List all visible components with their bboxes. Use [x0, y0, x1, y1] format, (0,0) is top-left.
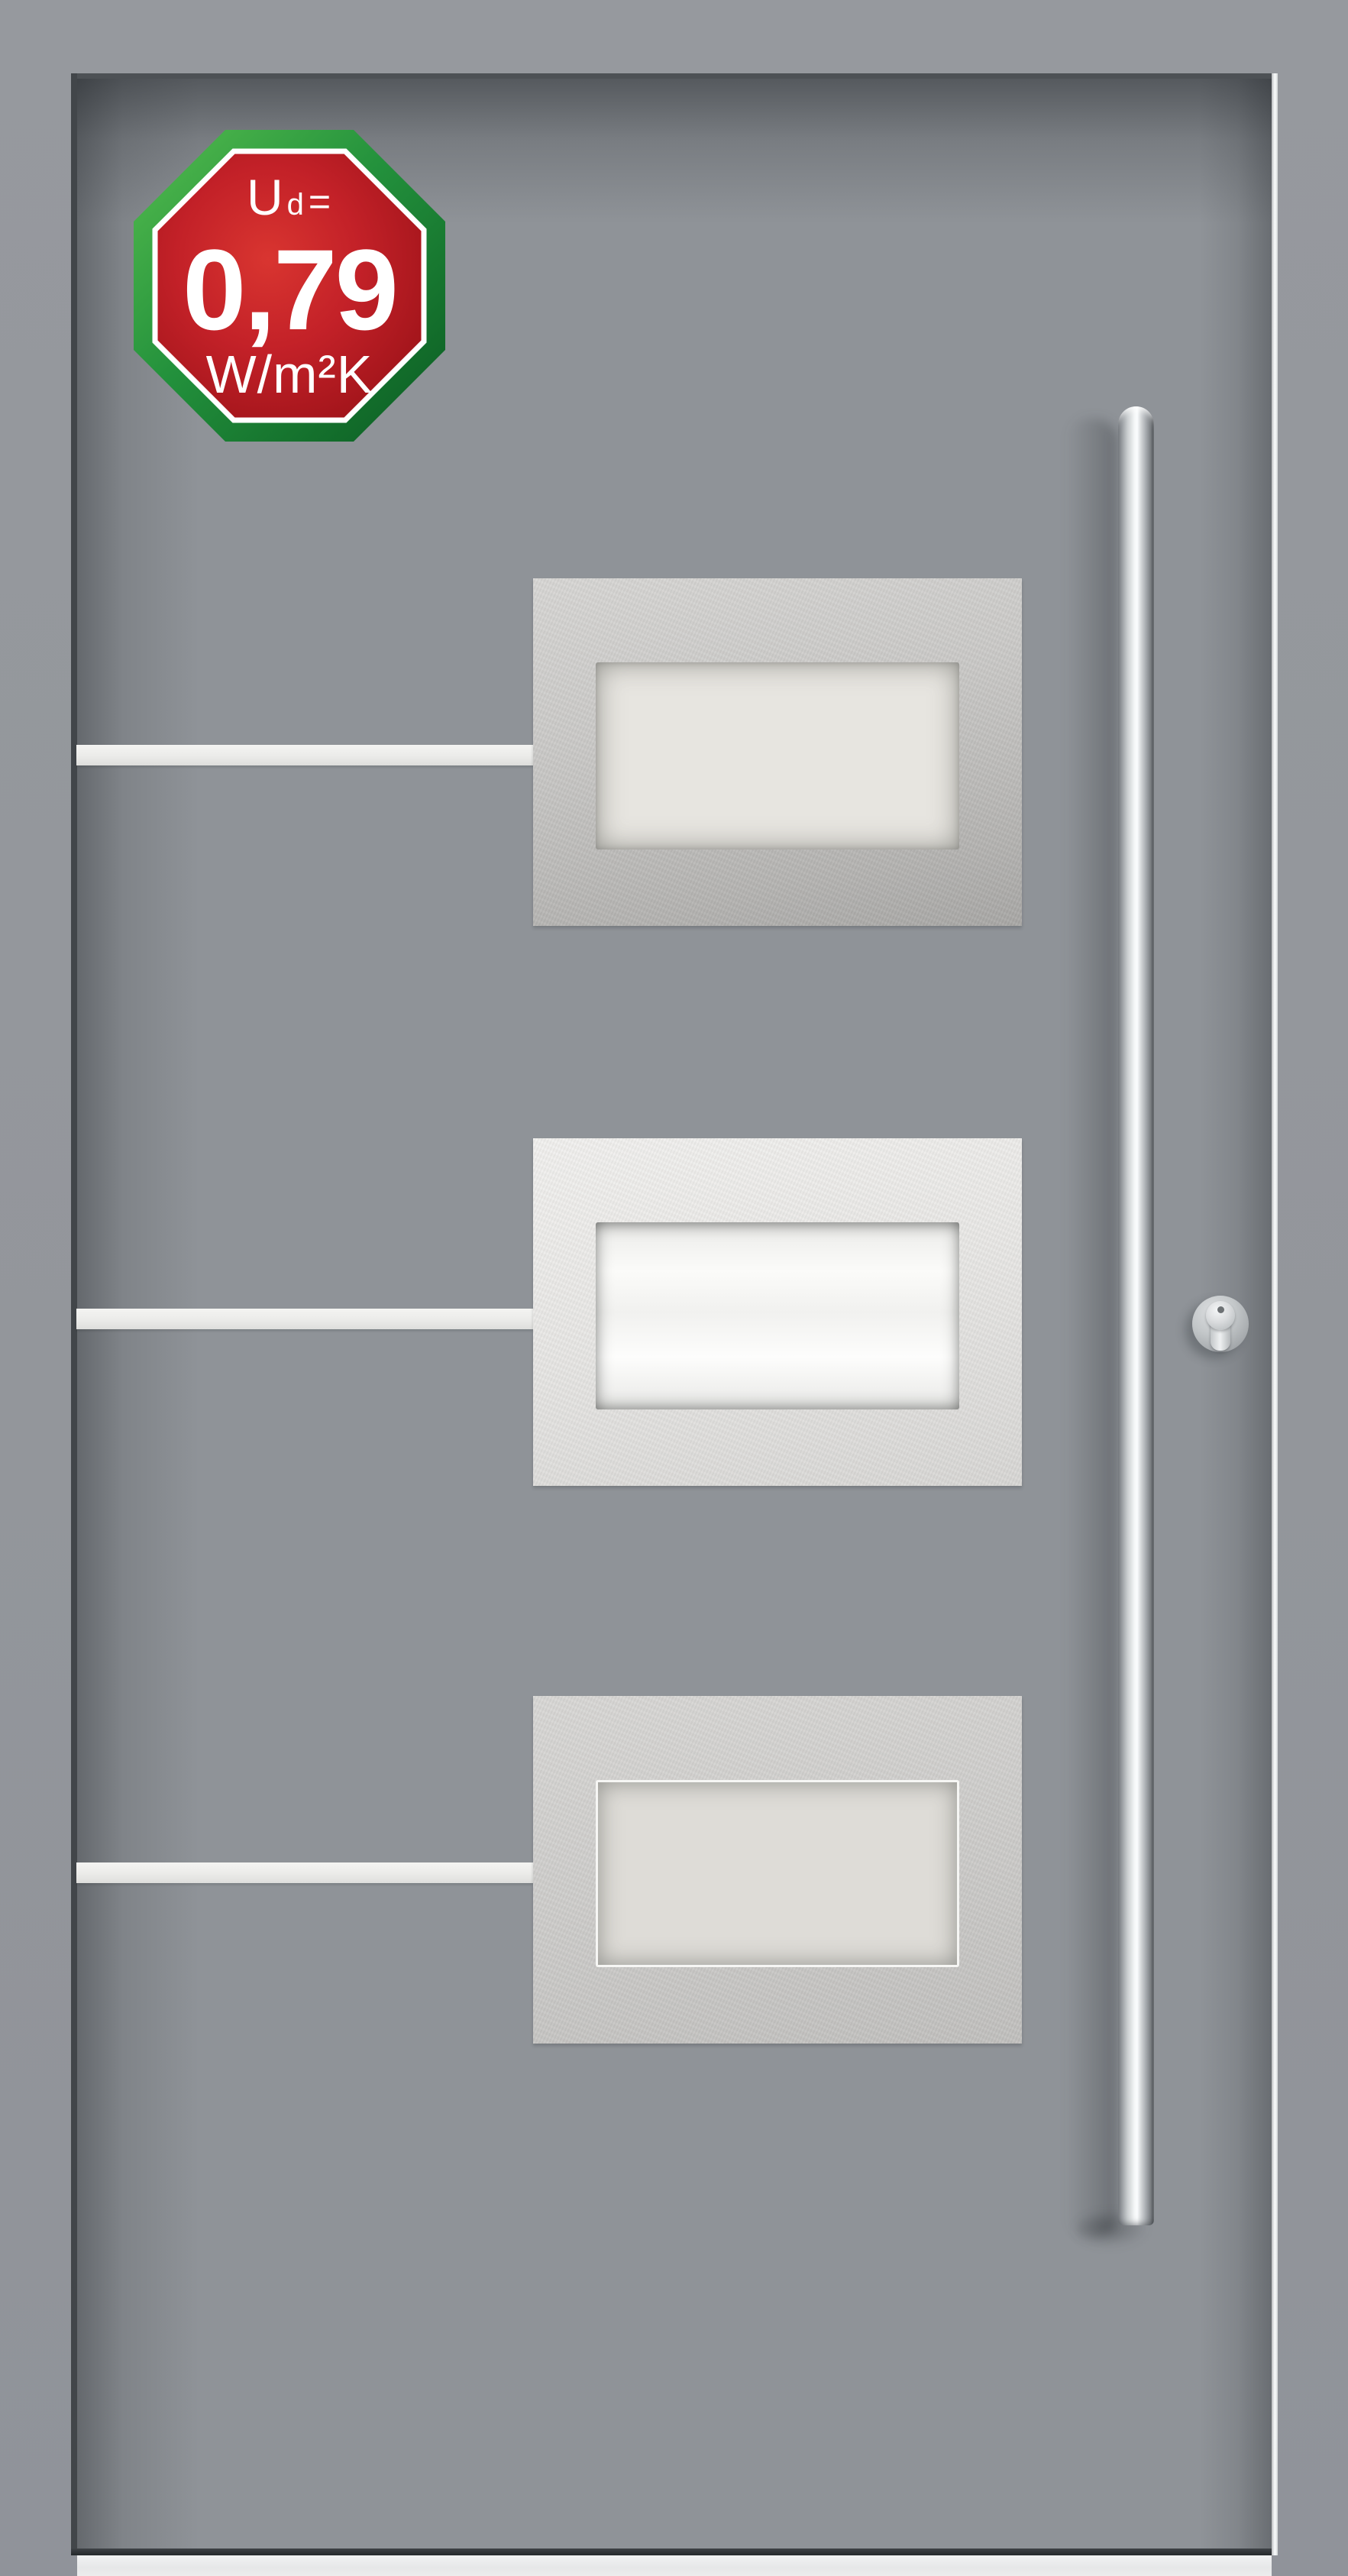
badge-coefficient: U d = — [134, 167, 445, 228]
handle-shadow — [1066, 419, 1118, 2237]
glazing-panel-1 — [533, 578, 1022, 926]
glass-pane-2 — [596, 1222, 959, 1409]
door-pull-handle — [1118, 406, 1154, 2225]
door-threshold — [77, 2555, 1272, 2576]
design-stripe-3 — [76, 1862, 533, 1883]
door-edge-highlight — [1272, 73, 1278, 2555]
glass-pane-3 — [596, 1780, 959, 1967]
badge-equals: = — [309, 171, 332, 232]
design-stripe-1 — [76, 745, 533, 765]
badge-value: 0,79 — [134, 232, 445, 347]
door-gap-top — [71, 73, 1272, 79]
door-gap-bottom — [71, 2548, 1272, 2555]
keyhole-icon — [1217, 1306, 1224, 1313]
design-stripe-2 — [76, 1309, 533, 1329]
glazing-panel-2 — [533, 1138, 1022, 1486]
glazing-panel-3 — [533, 1696, 1022, 2044]
badge-unit: W/m²K — [134, 342, 445, 406]
badge-symbol: U — [247, 167, 285, 228]
badge-text: U d = 0,79 W/m²K — [134, 130, 445, 442]
lock-cylinder — [1206, 1301, 1235, 1330]
u-value-badge: U d = 0,79 W/m²K — [134, 130, 445, 442]
glass-pane-1 — [596, 662, 959, 849]
